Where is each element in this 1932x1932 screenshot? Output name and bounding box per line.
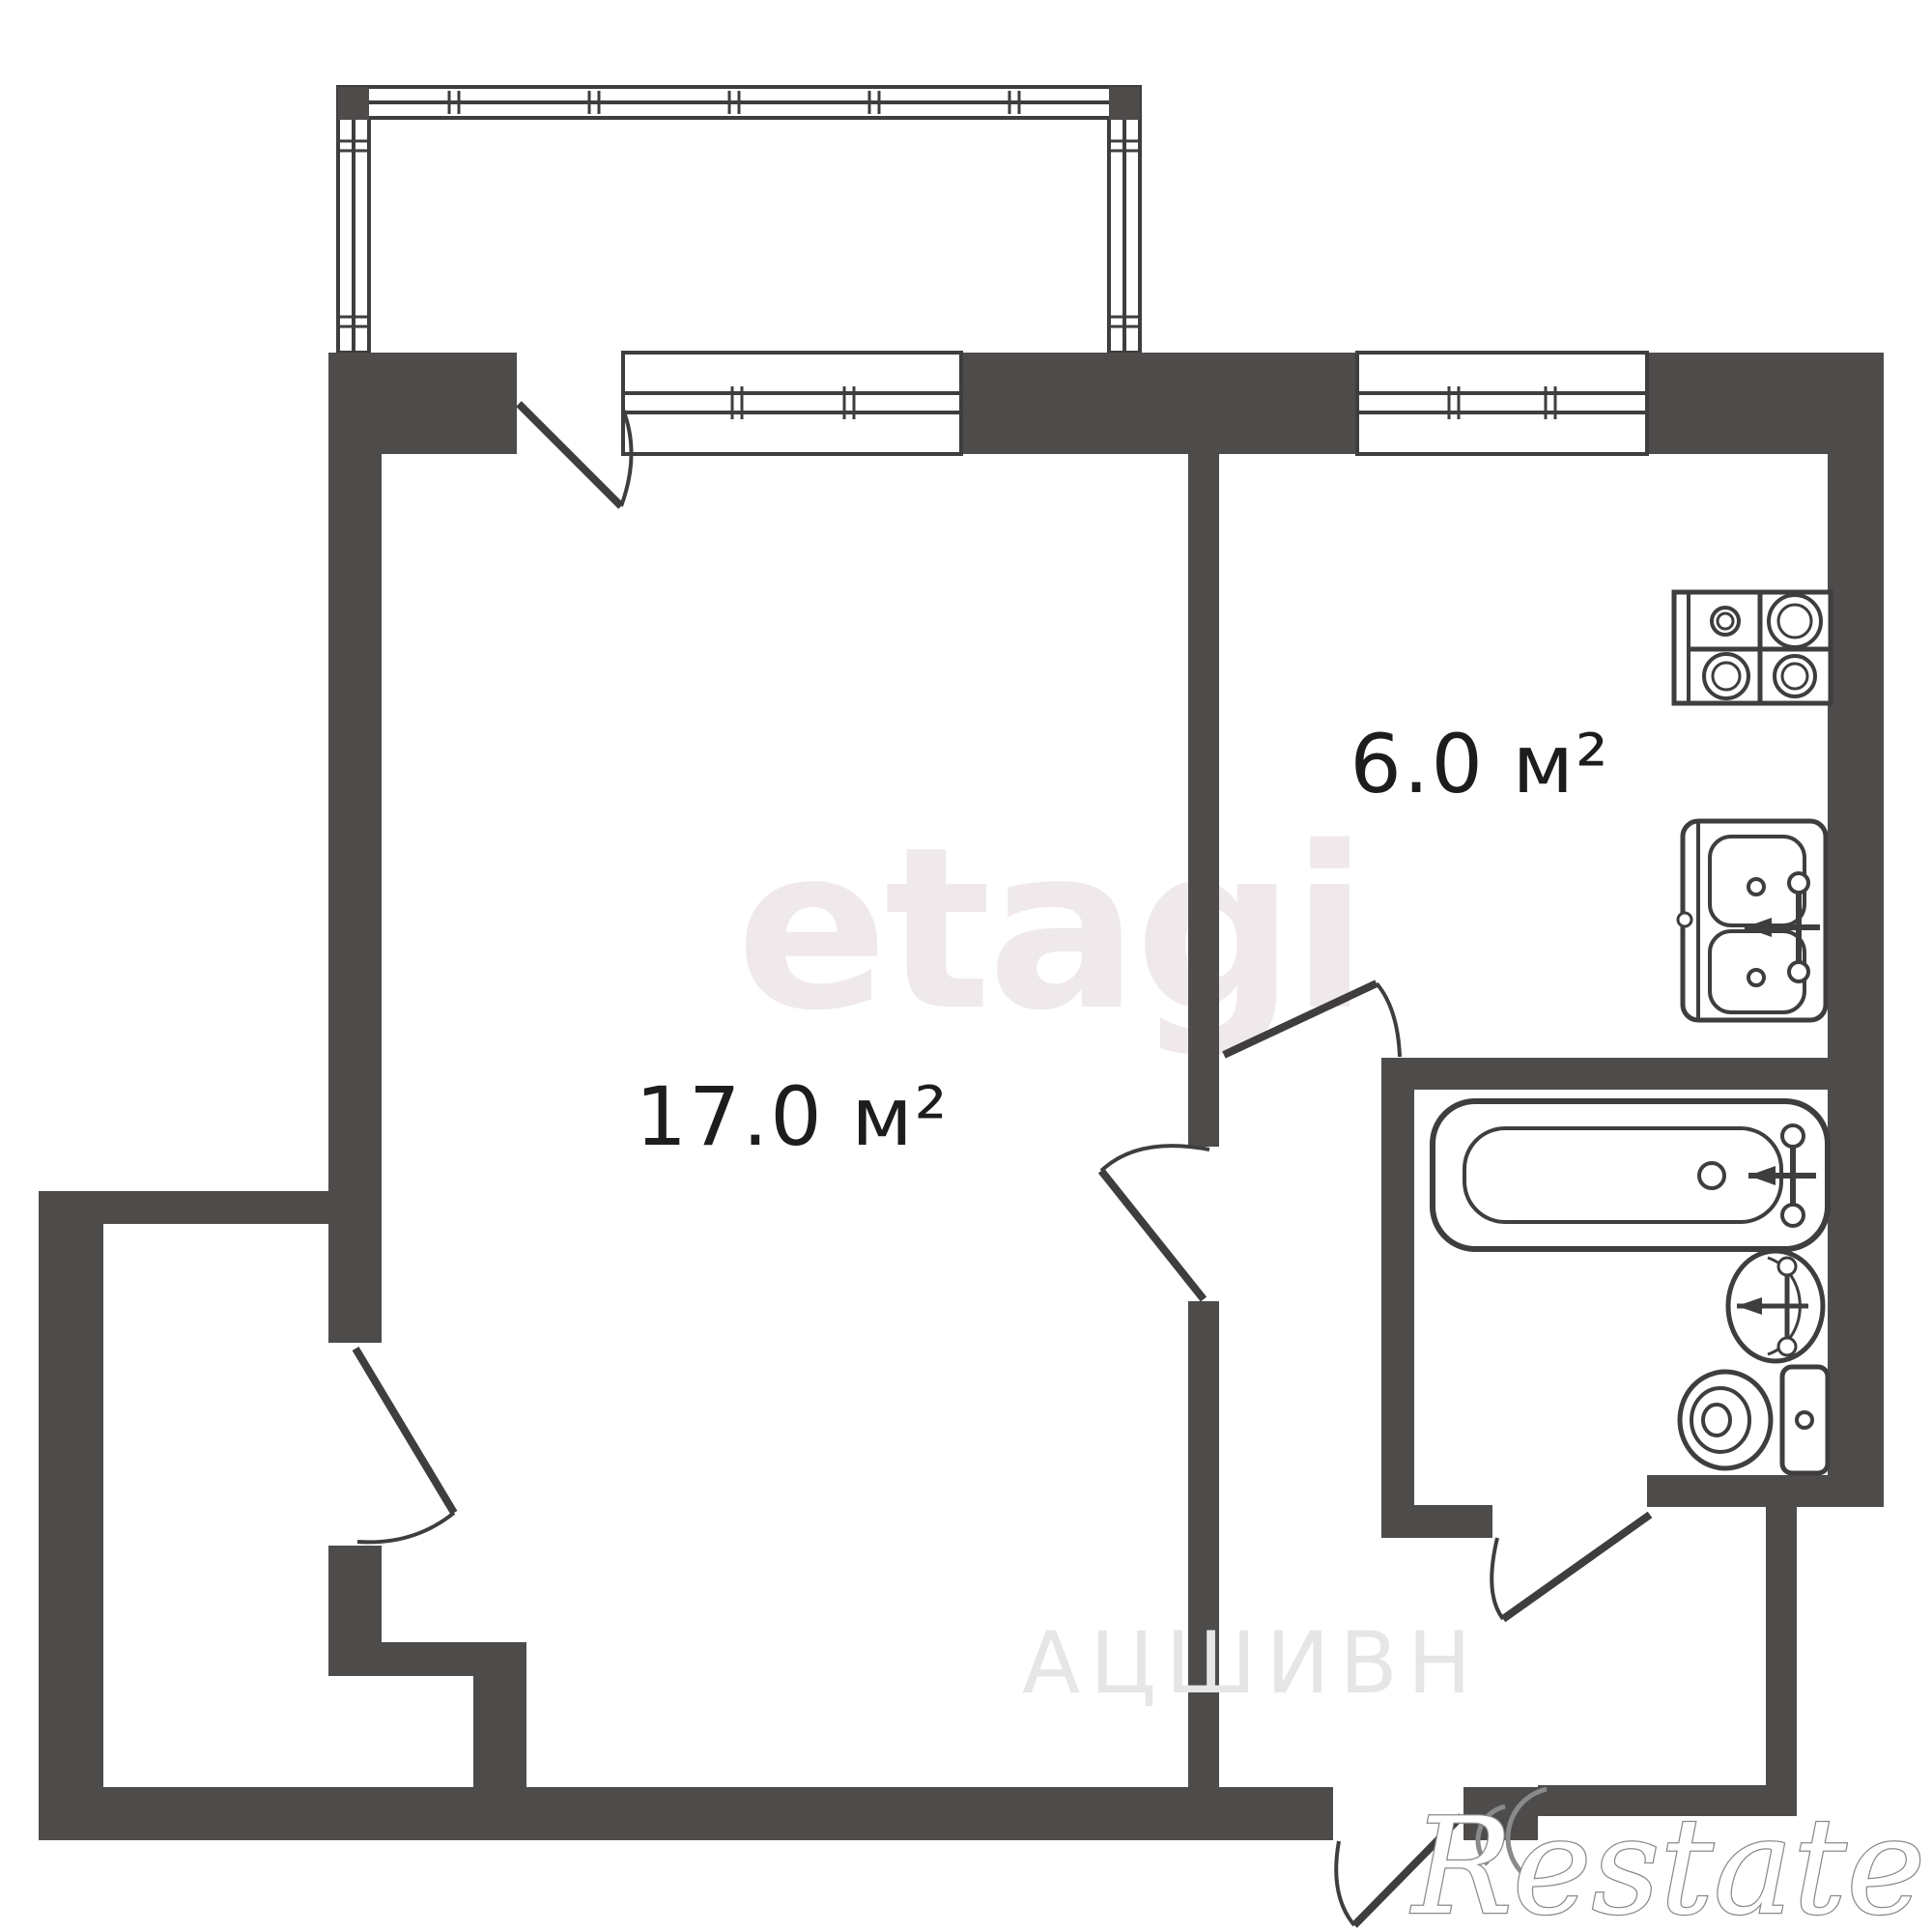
- balcony-door: [519, 404, 632, 506]
- floor-plan-svg: etagi: [0, 0, 1932, 1932]
- kitchen-area-label: 6.0 м²: [1350, 717, 1609, 811]
- bathroom-door: [1492, 1515, 1650, 1619]
- brand-logo-text: Restate: [1409, 1789, 1925, 1932]
- stove-icon: [1674, 592, 1831, 703]
- kitchen-window: [1357, 353, 1647, 454]
- floor-plan: etagi: [0, 0, 1932, 1932]
- washbasin-icon: [1728, 1251, 1823, 1361]
- living-room-area-label: 17.0 м²: [636, 1069, 950, 1164]
- balcony-glazing: [338, 87, 1140, 353]
- sink-icon: [1678, 821, 1826, 1020]
- watermark-etagi: etagi: [736, 799, 1364, 1060]
- brand-logo-restate: Restate: [1409, 1789, 1925, 1932]
- alcove-door: [355, 1349, 454, 1542]
- watermark-faint-text: АЦШИВН: [1022, 1613, 1481, 1713]
- living-room-door: [1101, 1146, 1209, 1299]
- bathtub-icon: [1433, 1101, 1828, 1249]
- toilet-icon: [1680, 1367, 1828, 1473]
- living-room-window: [623, 353, 961, 454]
